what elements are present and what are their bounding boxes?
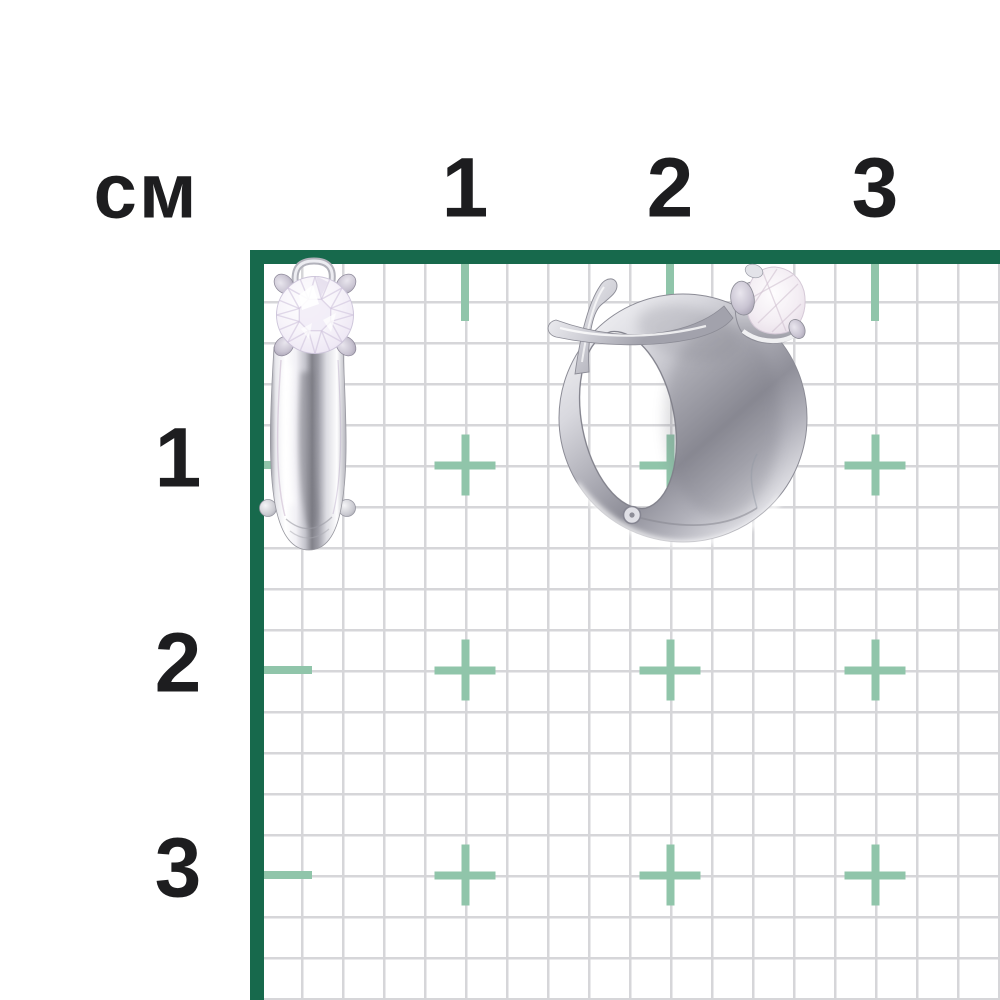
cm-tick-top [871, 264, 879, 321]
cm-cross-mark [845, 845, 906, 906]
top-axis-number: 3 [852, 140, 899, 237]
cm-cross-mark [435, 435, 496, 496]
cm-tick-top [461, 264, 469, 321]
cm-tick-top [666, 264, 674, 321]
cm-cross-mark [845, 640, 906, 701]
top-axis-number: 1 [442, 140, 489, 237]
top-axis-number: 2 [647, 140, 694, 237]
cm-cross-mark [435, 845, 496, 906]
left-axis-number: 3 [155, 820, 202, 917]
left-axis-number: 1 [155, 410, 202, 507]
size-reference-image: см 123 123 [0, 0, 1000, 1000]
cm-tick-left [264, 666, 312, 674]
ruler-frame-left-edge [250, 250, 264, 1000]
cm-tick-left [264, 461, 312, 469]
cm-cross-mark [640, 640, 701, 701]
cm-cross-mark [640, 435, 701, 496]
left-axis-number: 2 [155, 615, 202, 712]
cm-cross-mark [640, 845, 701, 906]
cm-cross-mark [435, 640, 496, 701]
cm-tick-left [264, 871, 312, 879]
cm-cross-mark [845, 435, 906, 496]
unit-label: см [93, 146, 198, 237]
ruler-frame-top-edge [250, 250, 1000, 264]
